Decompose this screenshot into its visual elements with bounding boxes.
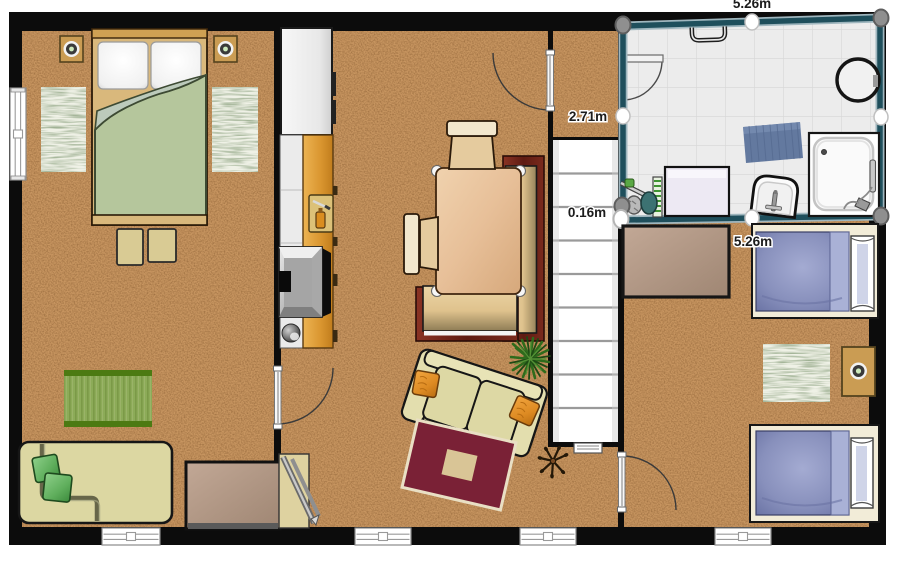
svg-text:5.26m: 5.26m	[733, 0, 771, 11]
svg-text:0.16m: 0.16m	[568, 205, 606, 220]
svg-text:5.26m: 5.26m	[734, 234, 772, 249]
svg-text:2.71m: 2.71m	[569, 109, 607, 124]
